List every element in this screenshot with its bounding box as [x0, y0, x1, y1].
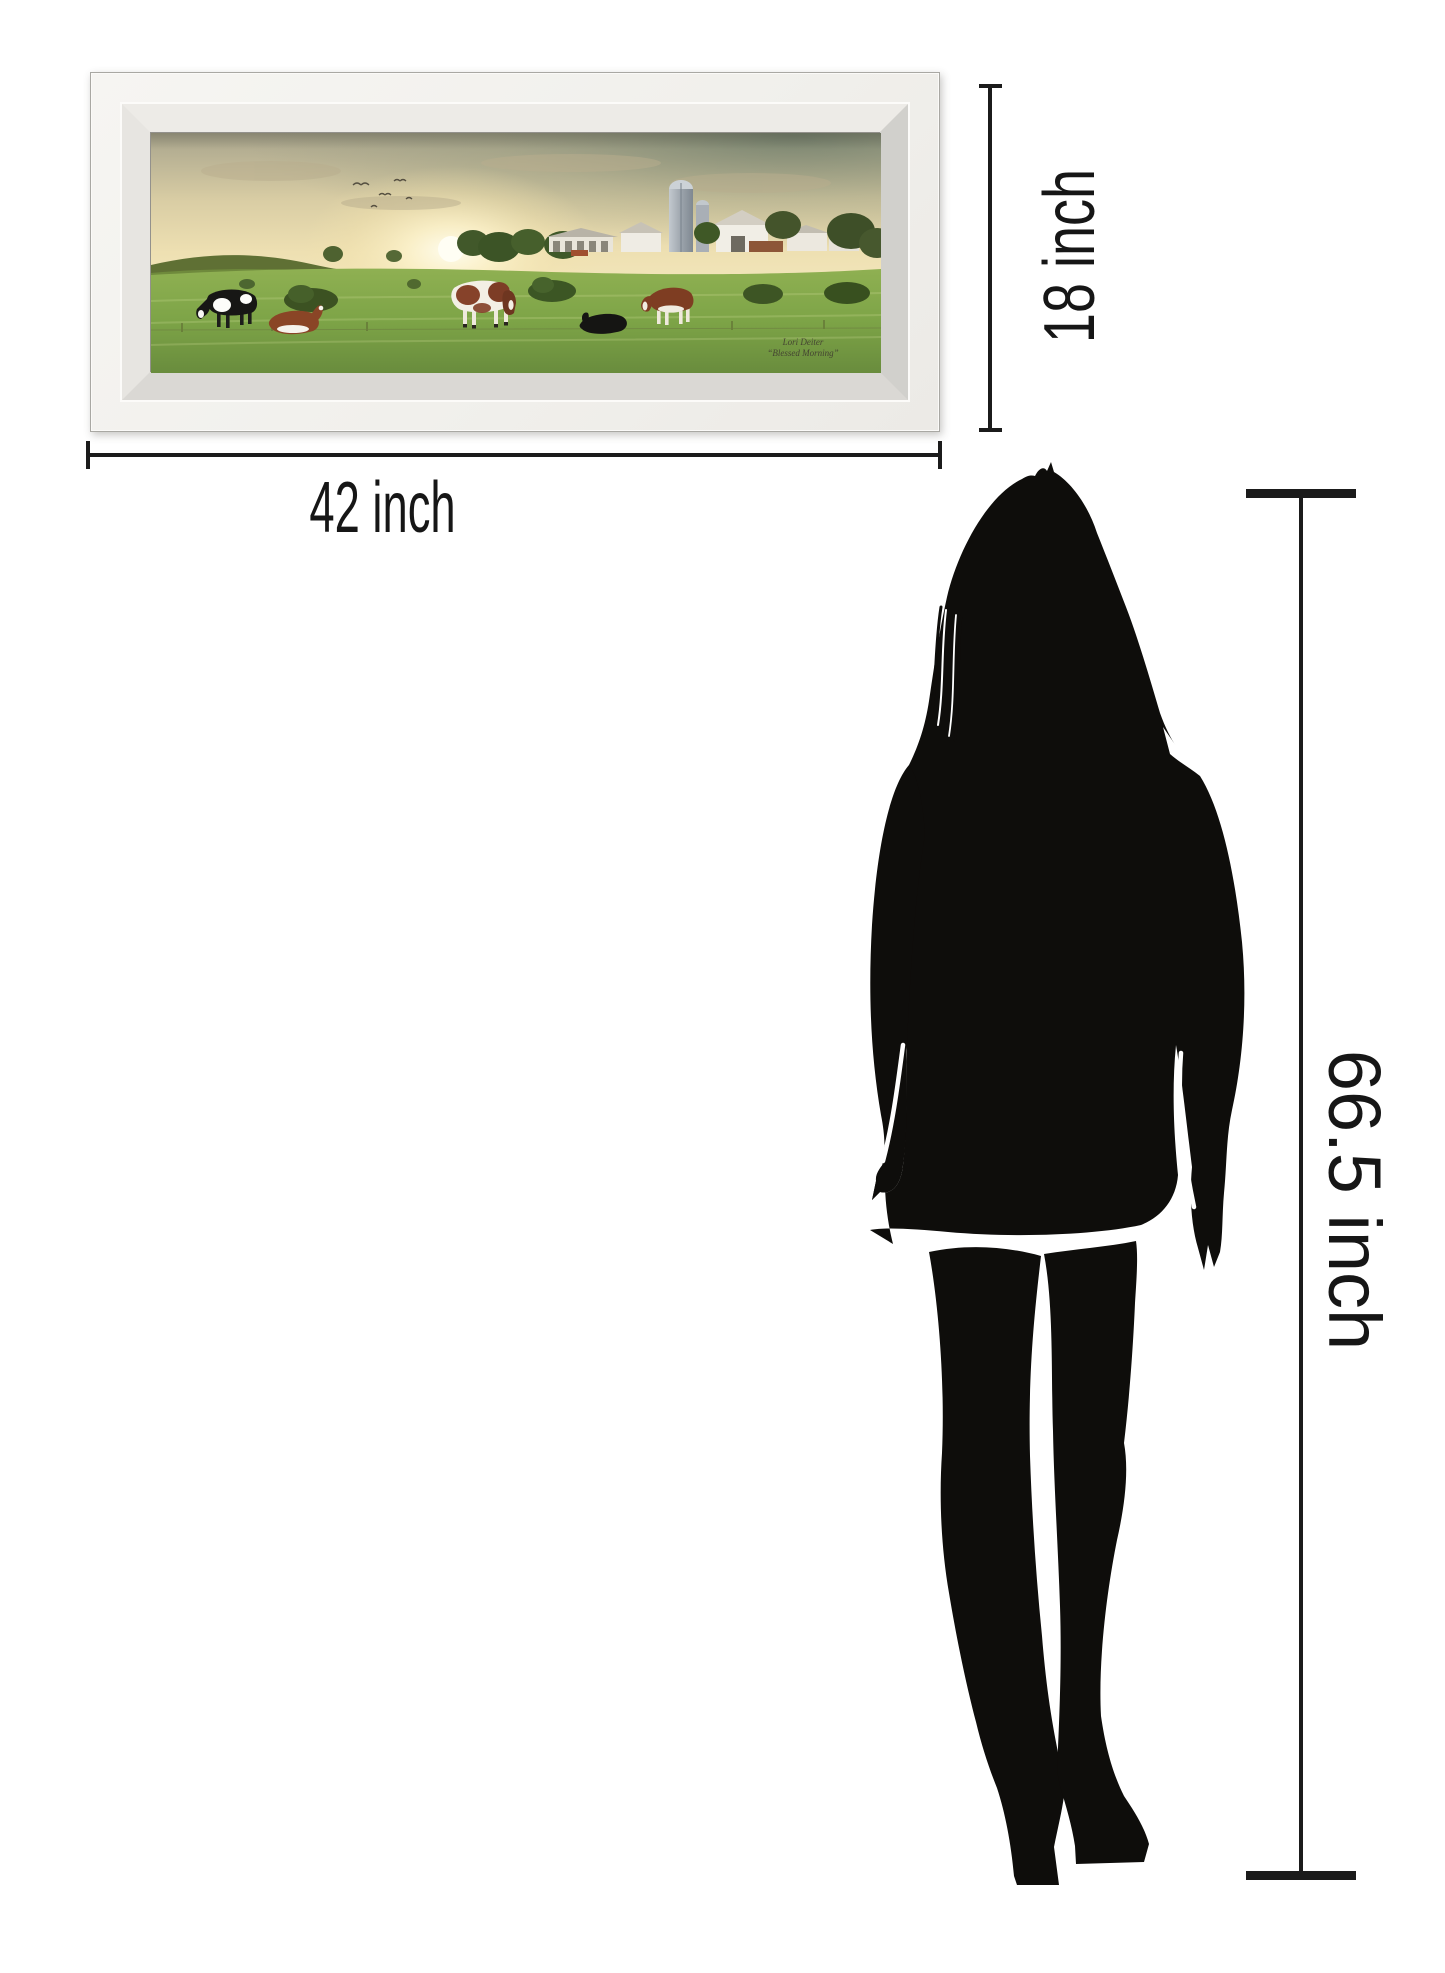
dimension-cap: [979, 84, 1002, 88]
dimension-line: [88, 453, 940, 457]
width-dimension-label: 42 inch: [293, 470, 473, 546]
height-dimension-label: 18 inch: [1034, 144, 1106, 369]
dimension-cap: [86, 441, 90, 469]
person-height-dimension-label: 66.5 inch: [1317, 1030, 1391, 1370]
framed-artwork: Lori Deiter “Blessed Morning”: [90, 72, 940, 432]
dimension-line: [988, 86, 992, 432]
artwork-title: “Blessed Morning”: [767, 348, 838, 358]
dimension-cap: [979, 428, 1002, 432]
dimension-line: [1299, 493, 1303, 1877]
artist-signature: Lori Deiter: [782, 337, 824, 347]
person-silhouette: [845, 455, 1275, 1895]
size-comparison-diagram: Lori Deiter “Blessed Morning” 42 inch 18…: [0, 0, 1445, 1973]
artwork-image: Lori Deiter “Blessed Morning”: [151, 133, 881, 373]
